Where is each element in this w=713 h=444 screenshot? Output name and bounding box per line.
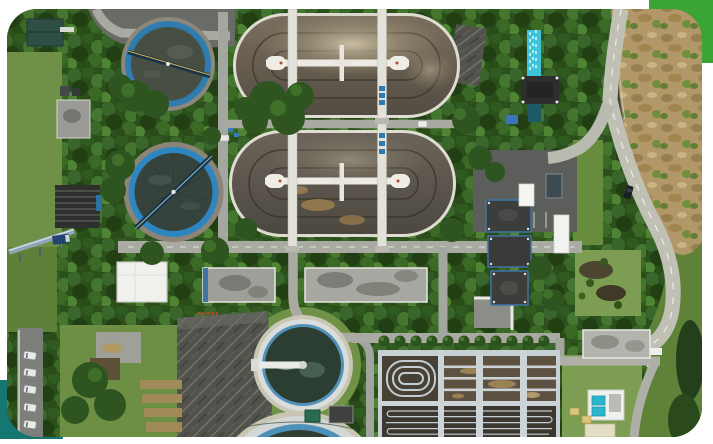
blue-tarp	[506, 115, 518, 124]
dark-roof-buildings-with-blue-trim	[486, 200, 531, 305]
oxidation-ditch-lower	[228, 124, 456, 252]
ditch-bridge	[378, 9, 387, 123]
south-gray-building	[583, 330, 662, 358]
aeration-basin-complex	[378, 350, 560, 437]
screenshot-root	[0, 0, 713, 444]
green-shed	[305, 410, 320, 422]
aerial-photo	[7, 9, 702, 437]
clarifier-mid-left	[124, 142, 224, 242]
dark-equipment-shed	[546, 174, 562, 198]
white-canopy	[519, 184, 534, 206]
dark-shed	[329, 406, 353, 423]
white-van	[418, 121, 427, 127]
white-roof-building	[117, 262, 167, 302]
white-covered-walkway	[554, 215, 569, 253]
long-gray-buildings	[203, 268, 427, 302]
dark-basin-rows	[55, 185, 102, 228]
ditch-bridge	[288, 124, 297, 250]
